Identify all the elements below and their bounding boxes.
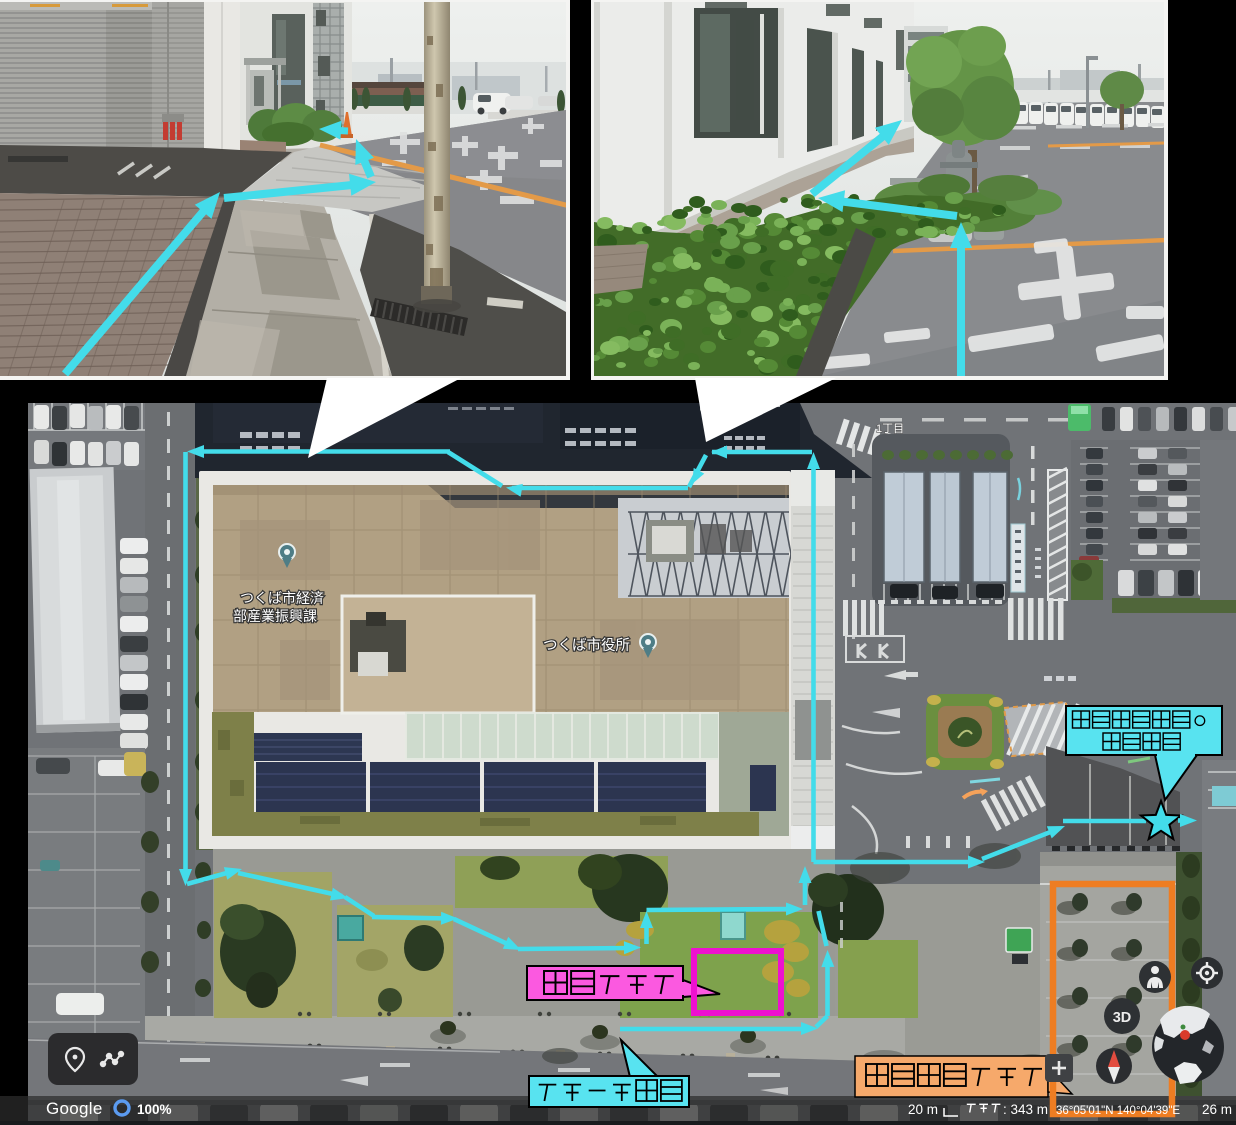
svg-text:つくば市役所: つくば市役所: [543, 637, 630, 654]
svg-text:36°05'01"N 140°04'39"E: 36°05'01"N 140°04'39"E: [1056, 1105, 1180, 1117]
svg-text:100%: 100%: [137, 1102, 172, 1117]
svg-text:3D: 3D: [1113, 1010, 1132, 1026]
svg-text:1丁目: 1丁目: [876, 423, 904, 435]
svg-text:20 m: 20 m: [908, 1102, 938, 1117]
svg-text:26 m: 26 m: [1202, 1102, 1232, 1117]
svg-text:つくば市経済: つくば市経済: [240, 590, 324, 606]
svg-text:部産業振興課: 部産業振興課: [233, 608, 317, 624]
svg-text:: 343 m: : 343 m: [1003, 1102, 1048, 1117]
svg-text:Google: Google: [46, 1099, 103, 1118]
